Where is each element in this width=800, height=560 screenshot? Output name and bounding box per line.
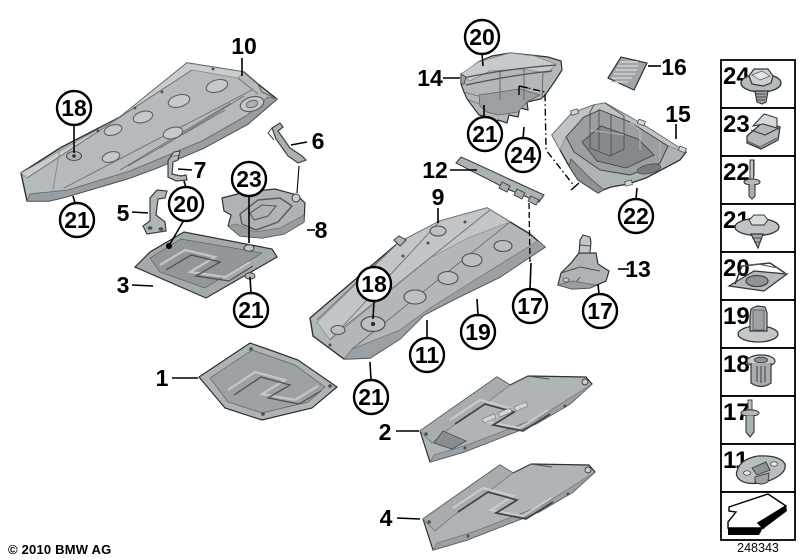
svg-text:2: 2 (379, 419, 392, 445)
svg-text:3: 3 (117, 272, 130, 298)
svg-text:24: 24 (510, 142, 536, 168)
svg-text:20: 20 (173, 191, 199, 217)
svg-text:© 2010 BMW AG: © 2010 BMW AG (8, 542, 111, 557)
svg-text:12: 12 (422, 157, 448, 183)
svg-text:22: 22 (623, 203, 649, 229)
svg-text:18: 18 (723, 351, 750, 378)
svg-text:21: 21 (64, 207, 90, 233)
svg-text:21: 21 (358, 384, 384, 410)
svg-text:15: 15 (665, 101, 691, 127)
svg-text:18: 18 (61, 95, 87, 121)
svg-text:13: 13 (625, 256, 651, 282)
svg-text:7: 7 (194, 157, 207, 183)
svg-text:14: 14 (417, 65, 443, 91)
svg-text:23: 23 (723, 111, 750, 138)
svg-text:21: 21 (472, 121, 498, 147)
svg-text:23: 23 (236, 166, 262, 192)
svg-text:17: 17 (587, 298, 613, 324)
svg-text:16: 16 (661, 54, 687, 80)
svg-text:17: 17 (517, 293, 543, 319)
svg-text:18: 18 (361, 271, 387, 297)
svg-text:21: 21 (238, 297, 264, 323)
svg-text:6: 6 (312, 128, 325, 154)
svg-text:9: 9 (432, 184, 445, 210)
svg-text:8: 8 (315, 217, 328, 243)
svg-text:20: 20 (469, 24, 495, 50)
svg-text:19: 19 (723, 303, 750, 330)
svg-text:11: 11 (415, 342, 440, 368)
svg-text:4: 4 (380, 505, 393, 531)
svg-text:19: 19 (465, 319, 491, 345)
svg-text:1: 1 (156, 365, 169, 391)
svg-text:248343: 248343 (737, 541, 779, 555)
svg-text:10: 10 (231, 33, 257, 59)
svg-text:5: 5 (117, 200, 130, 226)
